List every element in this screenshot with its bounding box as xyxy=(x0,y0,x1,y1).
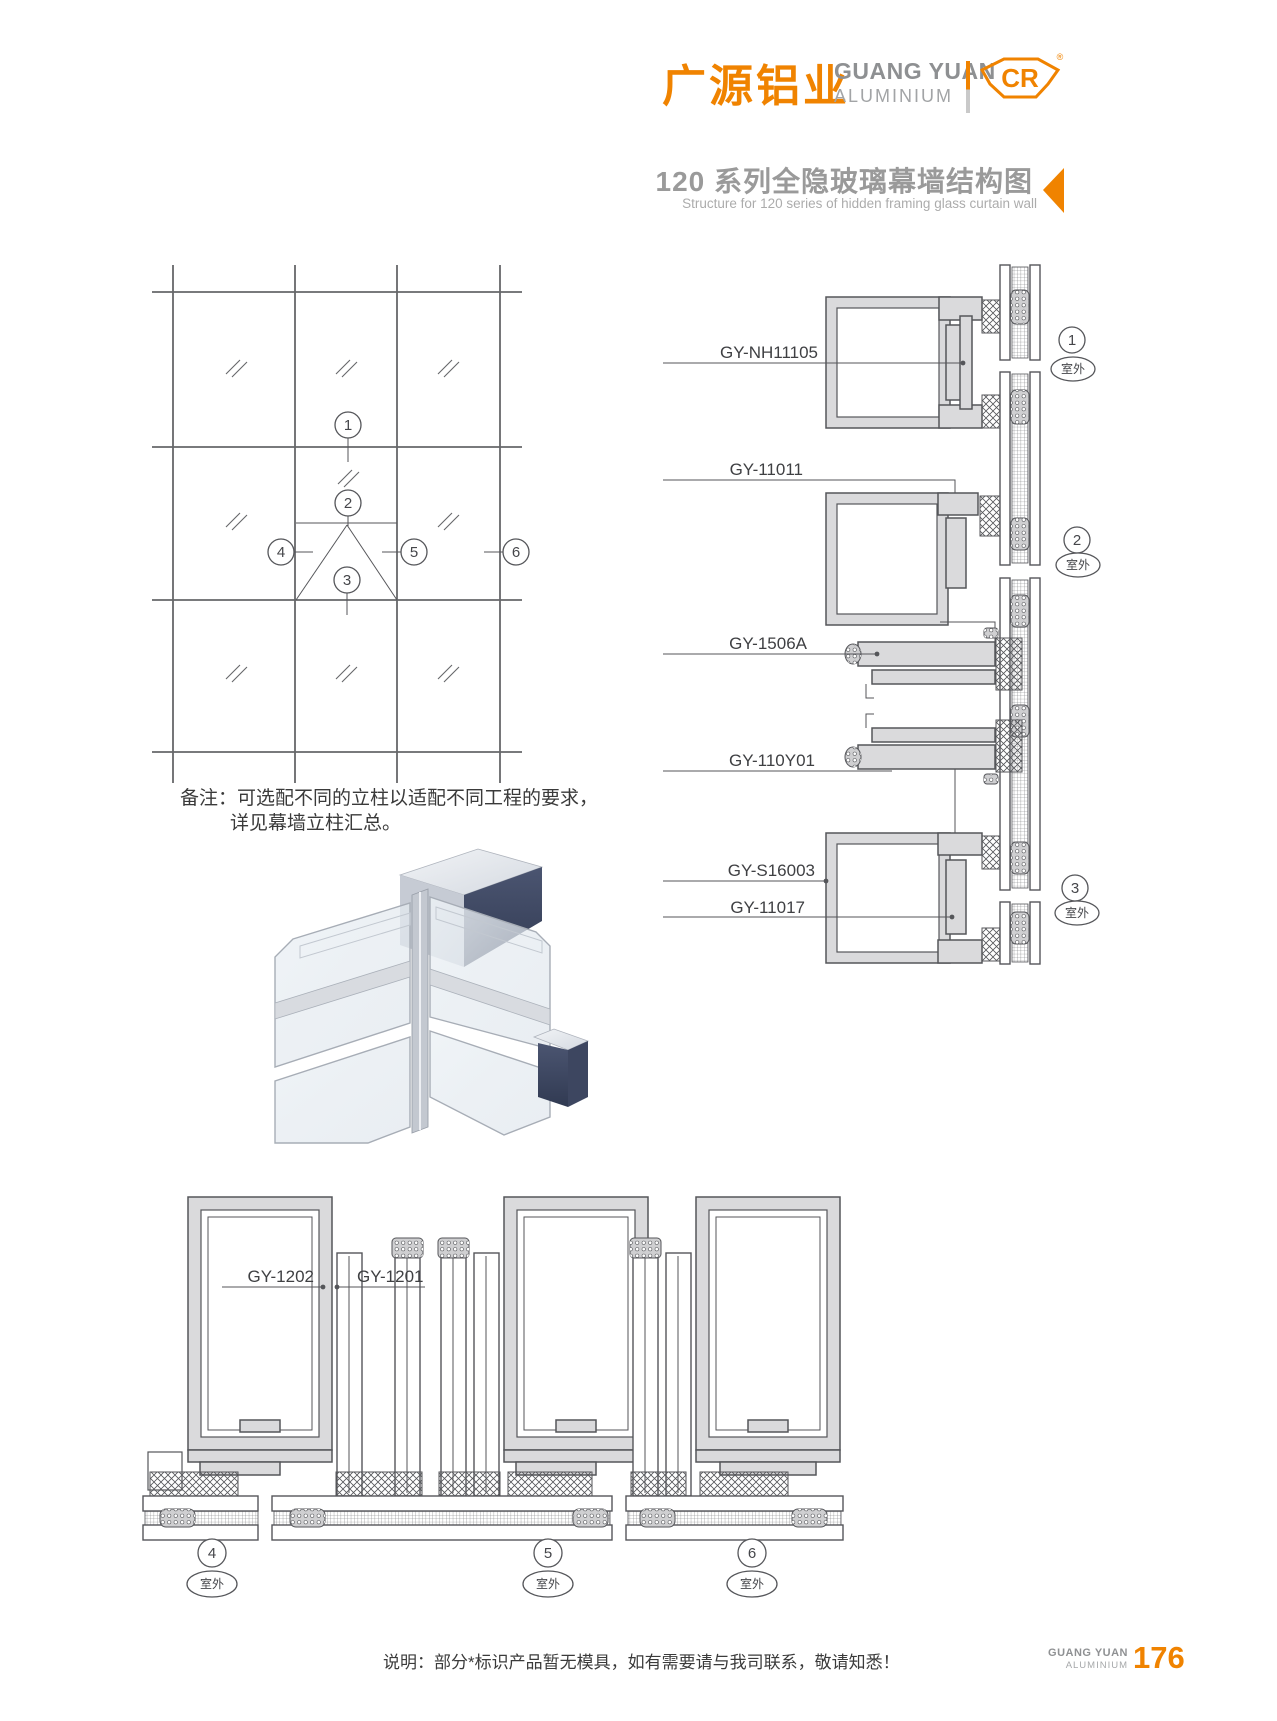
callout-number: 6 xyxy=(512,544,520,561)
callout-number: 4 xyxy=(277,544,285,561)
profile-code: GY-11011 xyxy=(730,460,803,479)
remark-line2: 详见幕墙立柱汇总。 xyxy=(180,811,598,836)
brand-sub-en: ALUMINIUM xyxy=(834,87,996,105)
outdoor-label: 室外 xyxy=(740,1576,764,1591)
outdoor-label: 室外 xyxy=(1066,557,1090,572)
cr-logo-text: CR xyxy=(1001,63,1039,93)
cr-logo-icon: CR ® xyxy=(978,50,1064,112)
remark-text1: 可选配不同的立柱以适配不同工程的要求， xyxy=(237,788,598,809)
detail-3-mullion-section xyxy=(826,769,1000,963)
label-gy-s16003: GY-S16003 xyxy=(663,861,828,883)
curtain-wall-grid xyxy=(152,265,522,783)
profile-code: GY-1506A xyxy=(729,634,807,653)
footer-brand-name: GUANG YUAN xyxy=(1048,1648,1128,1659)
detail-6-glass-strips xyxy=(630,1238,691,1496)
detail-5-glass-strips xyxy=(438,1238,499,1496)
header-divider-bar xyxy=(966,61,970,113)
callout-number: 2 xyxy=(344,495,352,512)
elevation-diagram: 1 2 3 4 5 6 xyxy=(150,255,550,790)
glass-unit-column xyxy=(1000,265,1040,964)
profile-code: GY-S16003 xyxy=(728,861,815,880)
remark-line1: 备注：可选配不同的立柱以适配不同工程的要求， xyxy=(180,786,598,811)
callout-number: 4 xyxy=(208,1545,216,1562)
profile-code: GY-11017 xyxy=(730,898,805,917)
vertical-section-details: GY-NH11105 GY-11011 GY-15 xyxy=(650,250,1170,980)
elevation-callout-6: 6 xyxy=(484,539,529,565)
footer-brand: GUANG YUAN ALUMINIUM xyxy=(1048,1648,1128,1671)
callout-number: 5 xyxy=(544,1545,552,1562)
detail-4-mullion-plan xyxy=(148,1197,332,1490)
label-gy-11011: GY-11011 xyxy=(663,460,955,493)
section-callout-2: 2 室外 xyxy=(1056,527,1100,577)
horizontal-section-details: GY-1202 GY-1201 xyxy=(140,1090,900,1610)
callout-number: 2 xyxy=(1073,532,1081,549)
detail-2-mullion-section xyxy=(826,493,1000,642)
remark-note: 备注：可选配不同的立柱以适配不同工程的要求， 详见幕墙立柱汇总。 xyxy=(180,786,598,836)
profile-code: GY-110Y01 xyxy=(729,751,815,770)
page-title: 120 系列全隐玻璃幕墙结构图 xyxy=(656,160,1034,200)
outdoor-label: 室外 xyxy=(536,1576,560,1591)
callout-number: 3 xyxy=(343,572,351,589)
callout-number: 5 xyxy=(410,544,418,561)
title-arrow-icon xyxy=(1043,168,1064,213)
elevation-callout-3: 3 xyxy=(334,567,360,615)
profile-code: GY-1201 xyxy=(357,1267,423,1286)
callout-number: 1 xyxy=(344,417,352,434)
section-callout-1: 1 室外 xyxy=(1051,327,1095,381)
page-subtitle: Structure for 120 series of hidden frami… xyxy=(682,196,1037,211)
detail-5-mullion-plan xyxy=(504,1197,648,1475)
brand-logo-chinese: 广源铝业 xyxy=(662,50,850,114)
callout-number: 3 xyxy=(1071,880,1079,897)
elevation-callout-4: 4 xyxy=(268,539,313,565)
registered-mark: ® xyxy=(1057,52,1064,62)
profile-code: GY-1202 xyxy=(248,1267,314,1286)
plan-callout-6: 6 室外 xyxy=(727,1539,777,1597)
remark-label: 备注： xyxy=(180,788,237,809)
footer-brand-sub: ALUMINIUM xyxy=(1048,1661,1128,1671)
section-callout-3: 3 室外 xyxy=(1055,875,1099,925)
plan-callout-4: 4 室外 xyxy=(187,1539,237,1597)
callout-number: 6 xyxy=(748,1545,756,1562)
glass-symbols xyxy=(226,360,459,682)
glass-band-plan xyxy=(143,1496,843,1540)
outdoor-label: 室外 xyxy=(200,1576,224,1591)
callout-number: 1 xyxy=(1068,332,1076,349)
outdoor-label: 室外 xyxy=(1065,905,1089,920)
page-number: 176 xyxy=(1133,1640,1185,1676)
brand-logo-english: GUANG YUAN ALUMINIUM xyxy=(834,60,996,105)
profile-code: GY-NH11105 xyxy=(720,343,818,362)
outdoor-label: 室外 xyxy=(1061,361,1085,376)
detail-6-mullion-plan xyxy=(696,1197,840,1475)
elevation-callout-5: 5 xyxy=(382,539,427,565)
brand-name-en: GUANG YUAN xyxy=(834,60,996,83)
detail-transom-110y01 xyxy=(845,714,1022,784)
plan-callout-5: 5 室外 xyxy=(523,1539,573,1597)
elevation-callout-2: 2 xyxy=(335,490,361,526)
elevation-callout-1: 1 xyxy=(335,412,361,462)
footer-note: 说明：部分*标识产品暂无模具，如有需要请与我司联系，敬请知悉！ xyxy=(383,1648,900,1673)
catalog-page: 广源铝业 GUANG YUAN ALUMINIUM CR ® 120 系列全隐玻… xyxy=(0,0,1277,1721)
